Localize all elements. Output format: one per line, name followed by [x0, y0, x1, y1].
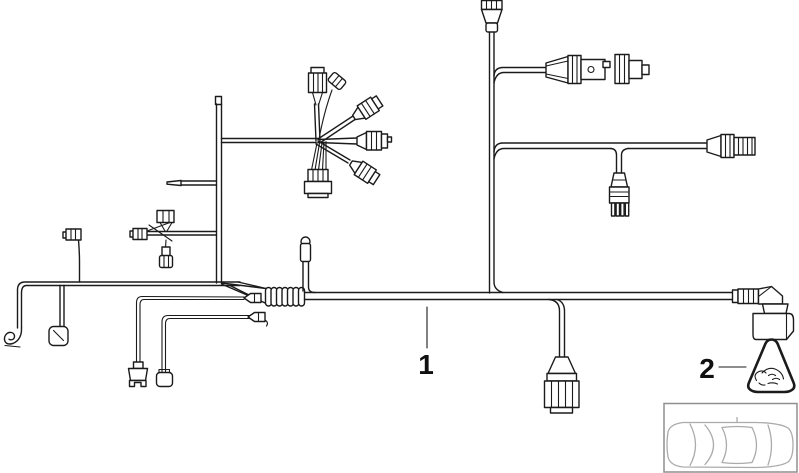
harness-main-run: [305, 287, 794, 414]
connector-small-box-left: [130, 229, 147, 240]
corrugated-sleeve: [266, 288, 305, 307]
car-thumbnail: [664, 404, 797, 473]
parts-diagram-page: 1 2: [0, 0, 799, 473]
callout-2-label[interactable]: 2: [699, 353, 715, 384]
connector-top-multipin: [482, 1, 503, 33]
connector-fanout-right: [357, 132, 392, 151]
fanout-cluster: [305, 68, 392, 198]
connector-drop-plug: [610, 149, 630, 217]
connector-fanout-upper-right: [350, 94, 384, 124]
connector-sensor-b: [157, 370, 173, 387]
wiring-harness-diagram: 1 2: [0, 0, 799, 473]
upright-stub: [301, 237, 316, 293]
branch-cluster-midleft: [130, 211, 217, 268]
harness-bottom-left-run: [4, 229, 240, 347]
connector-sensor-a: [129, 362, 148, 387]
callout-2[interactable]: 2: [699, 353, 746, 384]
car-thumbnail-frame: [664, 404, 797, 473]
connector-large-round: [545, 357, 580, 413]
connector-pin-plug-top: [157, 211, 174, 232]
connector-fanout-small-diagonal: [327, 72, 346, 91]
car-top-view-icon: [667, 418, 793, 468]
callout-1-label[interactable]: 1: [418, 349, 434, 380]
plug-warning-triangle-icon: [748, 340, 794, 393]
connector-hook-clip: [4, 328, 21, 347]
connector-fanout-bottom: [305, 170, 332, 198]
connector-inline-cylindrical: [546, 55, 649, 84]
harness-right-cable: [482, 1, 756, 294]
connector-rounded-clip: [49, 327, 68, 346]
connector-fanout-lower-right: [347, 156, 381, 186]
connector-fanout-top: [309, 68, 327, 93]
clip-wire-a: [137, 294, 262, 363]
connector-small-box-upper: [63, 229, 81, 282]
harness-left-trunk: [167, 97, 318, 284]
connector-ribbed-right: [707, 135, 755, 158]
callout-1[interactable]: 1: [418, 307, 434, 380]
clip-wire-b: [162, 313, 267, 373]
connector-round-plug-below: [160, 247, 173, 268]
connector-right-angle-end: [733, 287, 794, 340]
